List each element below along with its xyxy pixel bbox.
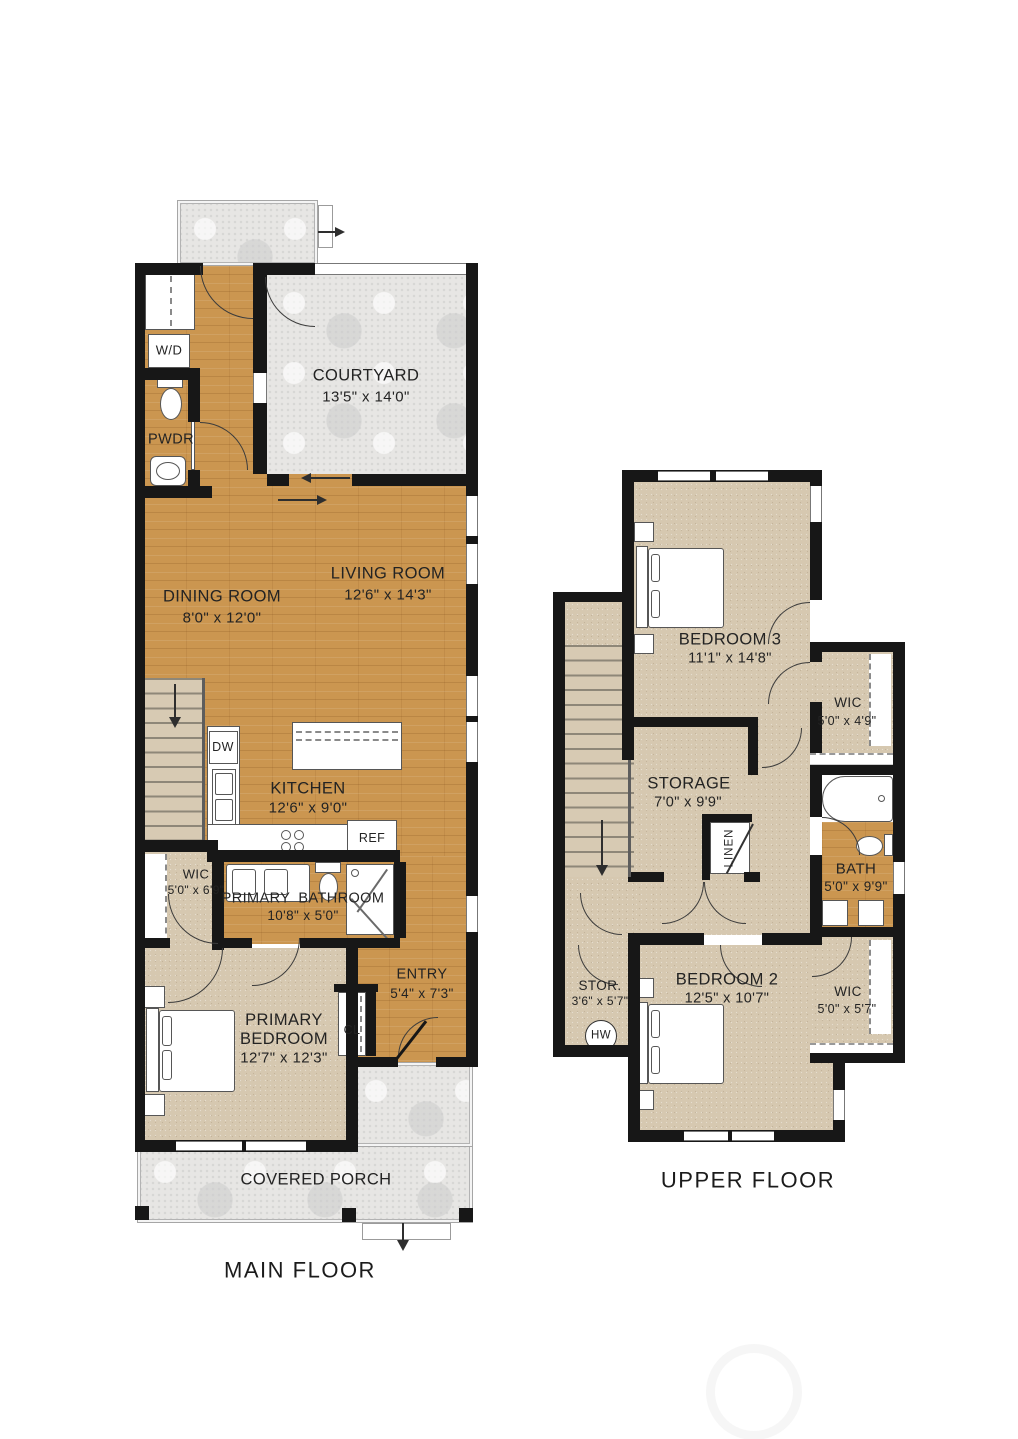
porch-post: [459, 1208, 473, 1222]
wall: [135, 1140, 352, 1152]
window: [893, 862, 905, 894]
kitchen-sink-basin-2: [215, 799, 233, 821]
window: [253, 373, 267, 403]
upper-sink-1: [822, 900, 848, 926]
cooktop-burner-1: [281, 830, 291, 840]
bath-dims: 5'0" x 9'9": [824, 879, 887, 895]
wall: [436, 1057, 478, 1067]
dw-label: DW: [212, 740, 234, 754]
pillow-2: [162, 1050, 172, 1080]
wall: [810, 1053, 905, 1063]
upper-floor-title: UPPER FLOOR: [661, 1167, 835, 1192]
wic2-dash-band: [810, 1043, 893, 1053]
upper-stairs-arrow-stem: [601, 820, 603, 866]
window: [466, 544, 478, 584]
kitchen-sink-basin-1: [215, 773, 233, 795]
window: [466, 676, 478, 716]
wall: [833, 1063, 845, 1090]
wall: [628, 933, 640, 1132]
wall: [810, 652, 822, 662]
upper-stair-rail: [628, 760, 631, 877]
wall: [810, 765, 905, 775]
ref-label: REF: [359, 831, 385, 845]
wall: [553, 1045, 640, 1057]
wall: [810, 927, 905, 937]
wall: [188, 380, 200, 422]
wall: [553, 592, 634, 602]
window: [315, 263, 466, 275]
entry-label: ENTRY: [397, 967, 448, 984]
pwdr-label: PWDR: [148, 432, 194, 449]
wall: [810, 775, 822, 817]
wall: [135, 840, 218, 852]
wall: [553, 592, 565, 1057]
nightstand-1: [143, 986, 165, 1008]
wall: [267, 474, 289, 486]
wall: [744, 872, 760, 882]
bedroom2-label: BEDROOM 2: [676, 971, 779, 990]
island-dash-2: [296, 739, 398, 741]
window: [716, 471, 768, 481]
wall: [207, 850, 400, 862]
living-arrow-stem: [278, 499, 318, 501]
porch-post: [135, 1206, 149, 1220]
pwdr-sink-basin: [156, 462, 180, 480]
wall: [346, 1057, 398, 1067]
upper-stairs-arrow: [596, 865, 608, 876]
wall: [135, 263, 145, 1148]
stor-label: STOR.: [578, 978, 621, 994]
patio-step: [318, 205, 333, 248]
wall: [748, 717, 758, 775]
wic2-dims: 5'0" x 5'7": [817, 1002, 876, 1016]
primary-bathroom-label: PRIMARY BATHROOM: [222, 891, 385, 908]
dining-room-label: DINING ROOM: [163, 588, 281, 607]
wall: [253, 403, 267, 474]
window: [732, 1131, 774, 1141]
wic2-shelf: [869, 940, 891, 1034]
wall: [143, 368, 200, 380]
wall: [702, 814, 710, 880]
pwdr-toilet-bowl: [160, 388, 182, 420]
wall: [135, 486, 212, 498]
living-arrow: [317, 495, 327, 505]
porch-step: [362, 1223, 451, 1240]
wall: [628, 717, 758, 727]
wall: [893, 642, 905, 862]
cooktop-burner-2: [294, 830, 304, 840]
upper-toilet-bowl: [856, 836, 883, 856]
wall: [810, 855, 822, 927]
island-dash-1: [296, 731, 398, 733]
window: [466, 896, 478, 932]
watermark-circle: [706, 1344, 802, 1439]
wic-dims: 5'0" x 6'9": [168, 884, 225, 898]
living-room-label: LIVING ROOM: [331, 565, 445, 584]
porch-arrow: [397, 1240, 409, 1251]
linen-label: LINEN: [723, 829, 736, 868]
stor-dims: 3'6" x 5'7": [572, 995, 629, 1009]
kitchen-dims: 12'6" x 9'0": [269, 799, 348, 816]
living-room-dims: 12'6" x 14'3": [344, 586, 431, 603]
pillow-3: [651, 554, 660, 582]
porch-arrow-stem: [402, 1223, 404, 1241]
floor-plan-canvas: W/D PWDR COURTYARD 13'5" x 14'0" DINING …: [0, 0, 1018, 1439]
window: [466, 496, 478, 536]
main-floor-title: MAIN FLOOR: [224, 1257, 376, 1282]
pillow-4: [651, 590, 660, 618]
bath-toilet-tank: [315, 862, 341, 873]
wall: [334, 984, 378, 992]
primary-bedroom-label: PRIMARY BEDROOM: [214, 1011, 354, 1049]
window: [658, 471, 710, 481]
wall: [267, 263, 315, 275]
porch-post: [342, 1208, 356, 1222]
bed3-headboard: [636, 546, 648, 628]
wall: [394, 862, 406, 938]
window: [246, 1141, 306, 1151]
tub-drain: [878, 795, 885, 802]
wall: [366, 992, 376, 1056]
courtyard-arrow: [301, 473, 311, 483]
courtyard-label: COURTYARD: [313, 367, 420, 386]
wall: [135, 938, 170, 948]
kitchen-island: [292, 722, 402, 770]
window: [684, 1131, 728, 1141]
dining-room-dims: 8'0" x 12'0": [183, 609, 262, 626]
wall: [893, 894, 905, 1063]
bed-headboard: [146, 1008, 159, 1092]
porch-right-floor: [348, 1062, 473, 1147]
bedroom3-dims: 11'1" x 14'8": [688, 651, 772, 668]
primary-bathroom-dims: 10'8" x 5'0": [267, 908, 338, 924]
bath-label: BATH: [836, 860, 877, 877]
courtyard-arrow-stem: [310, 477, 350, 479]
wall: [628, 933, 704, 945]
nightstand-4: [634, 634, 654, 654]
covered-porch-label: COVERED PORCH: [241, 1171, 392, 1190]
wd-closet-divider: [170, 276, 172, 326]
pillow-6: [651, 1046, 660, 1074]
wic3-label: WIC: [834, 695, 861, 711]
wic-label: WIC: [183, 868, 209, 883]
wic3-dash-band: [810, 753, 893, 765]
patio-top: [177, 200, 318, 266]
window: [810, 486, 822, 522]
wall: [810, 642, 905, 652]
stairs-arrow-stem: [174, 684, 176, 718]
bedroom3-label: BEDROOM 3: [679, 631, 782, 650]
entry-dims: 5'4" x 7'3": [390, 986, 453, 1002]
hw-label: HW: [591, 1029, 611, 1042]
stairs-arrow: [169, 717, 181, 728]
patio-arrow-stem: [318, 231, 335, 233]
wall: [702, 814, 752, 822]
wall: [352, 474, 478, 486]
pillow-5: [651, 1010, 660, 1038]
wall: [135, 263, 203, 275]
wall: [346, 948, 358, 1152]
wic2-label: WIC: [834, 984, 861, 1000]
kitchen-label: KITCHEN: [270, 780, 345, 799]
wall: [628, 872, 664, 882]
courtyard-dims: 13'5" x 14'0": [322, 388, 409, 405]
shower-head: [351, 869, 359, 877]
primary-bedroom-dims: 12'7" x 12'3": [240, 1049, 327, 1066]
patio-arrow: [335, 227, 345, 237]
window: [176, 1141, 242, 1151]
bedroom2-dims: 12'5" x 10'7": [685, 991, 770, 1008]
upper-sink-2: [858, 900, 884, 926]
wall: [218, 938, 252, 948]
nightstand-2: [143, 1094, 165, 1116]
upper-toilet-tank: [884, 834, 893, 856]
wall: [466, 263, 478, 1062]
storage-dims: 7'0" x 9'9": [654, 795, 722, 812]
wic-shelf: [145, 854, 167, 944]
window: [833, 1090, 845, 1120]
wic3-dims: 5'0" x 4'9": [817, 714, 876, 728]
window: [466, 722, 478, 762]
wall: [300, 938, 400, 948]
pillow-1: [162, 1016, 172, 1046]
stair-rail: [202, 678, 205, 842]
wd-label: W/D: [156, 344, 182, 359]
wic3-shelf: [869, 654, 891, 746]
storage-label: STORAGE: [647, 775, 730, 794]
nightstand-3: [634, 522, 654, 542]
